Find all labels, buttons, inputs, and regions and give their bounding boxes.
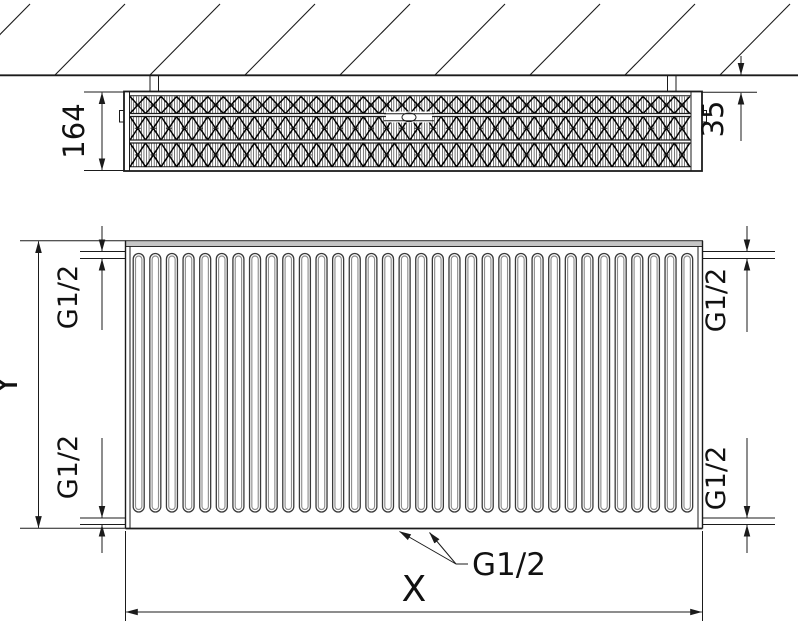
channel-groove [333, 254, 344, 513]
channel-groove [150, 254, 161, 513]
depth-dimension-label: 164 [57, 103, 91, 158]
hatch-line [720, 4, 790, 75]
dimension-width-X: X [126, 531, 703, 621]
wall-bracket-right [668, 75, 677, 91]
dimension-connection-bottom-left: G1/2 [53, 435, 102, 553]
hatch-line [340, 4, 410, 75]
top-grille-band [126, 241, 703, 247]
channel-groove [632, 254, 643, 513]
channel-groove [299, 254, 310, 513]
channel-groove [250, 254, 261, 513]
connection-label-bottom-right: G1/2 [701, 446, 732, 510]
connection-label-bottom-left: G1/2 [53, 435, 84, 499]
channel-groove [383, 254, 394, 513]
channel-groove [482, 254, 493, 513]
wall-gap-dimension-label: 35 [696, 101, 730, 138]
convector-fins [130, 97, 690, 167]
channel-groove [582, 254, 593, 513]
hatch-line [625, 4, 695, 75]
channel-groove [349, 254, 360, 513]
channel-groove [549, 254, 560, 513]
panel-channels [133, 254, 692, 513]
height-dimension-label: Y [0, 374, 26, 396]
channel-groove [515, 254, 526, 513]
hatch-line [530, 4, 600, 75]
hatch-line [0, 4, 30, 75]
top-view: 164 35 [0, 4, 798, 171]
connection-label-bottom-center: G1/2 [472, 547, 546, 583]
channel-groove [449, 254, 460, 513]
hatch-line [245, 4, 315, 75]
hatch-line [150, 4, 220, 75]
channel-groove [665, 254, 676, 513]
center-hub-detail [384, 112, 434, 123]
channel-groove [399, 254, 410, 513]
width-dimension-label: X [402, 569, 427, 610]
channel-groove [216, 254, 227, 513]
front-view: Y X G1/2 G1/2 G1/2 G1/2 [0, 226, 775, 621]
dimension-connection-top-right: G1/2 [701, 226, 747, 332]
channel-groove [599, 254, 610, 513]
channel-groove [366, 254, 377, 513]
channel-groove [133, 254, 144, 513]
channel-groove [283, 254, 294, 513]
channel-groove [233, 254, 244, 513]
hatch-line [55, 4, 125, 75]
dimension-connection-top-left: G1/2 [53, 226, 102, 330]
top-view-body [124, 92, 702, 172]
channel-groove [166, 254, 177, 513]
connection-label-top-left: G1/2 [53, 265, 84, 329]
radiator-technical-drawing: 164 35 Y [0, 0, 800, 633]
dimension-depth-164: 164 [57, 92, 124, 171]
channel-groove [432, 254, 443, 513]
channel-groove [532, 254, 543, 513]
wall-bracket-left [150, 75, 159, 91]
channel-groove [466, 254, 477, 513]
channel-groove [200, 254, 211, 513]
channel-groove [416, 254, 427, 513]
channel-groove [615, 254, 626, 513]
channel-groove [565, 254, 576, 513]
wall-hatching [0, 4, 790, 75]
channel-groove [499, 254, 510, 513]
channel-groove [266, 254, 277, 513]
channel-groove [682, 254, 693, 513]
hatch-line [435, 4, 505, 75]
channel-groove [316, 254, 327, 513]
connection-label-top-right: G1/2 [701, 268, 732, 332]
dimension-connection-bottom-right: G1/2 [701, 438, 747, 553]
channel-groove [648, 254, 659, 513]
channel-groove [183, 254, 194, 513]
